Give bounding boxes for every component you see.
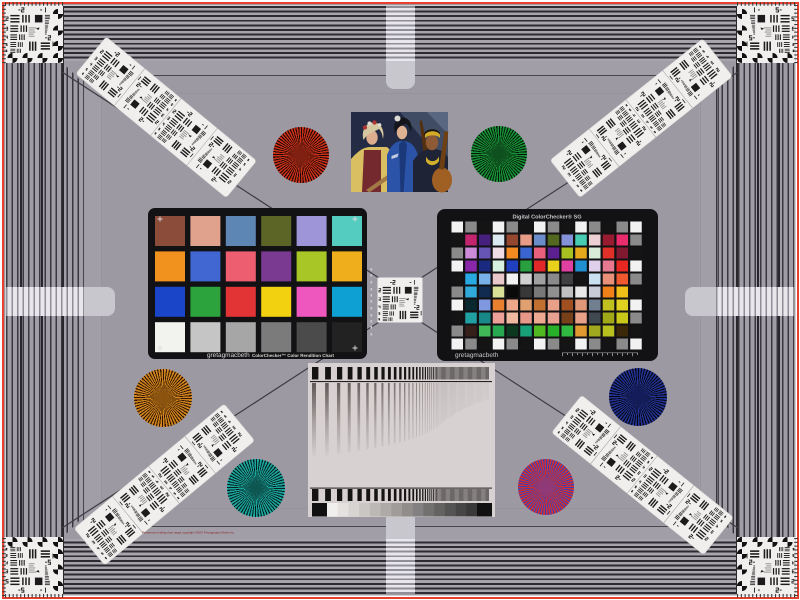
- svg-text:gretagmacbeth: gretagmacbeth: [207, 352, 250, 359]
- svg-text:gretagmacbeth: gretagmacbeth: [455, 352, 499, 359]
- svg-text:ColorChecker™ Color Rendition: ColorChecker™ Color Rendition Chart: [252, 353, 335, 358]
- svg-text:Persimmon testing chart target: Persimmon testing chart target copyright…: [142, 531, 235, 535]
- svg-text:Digital ColorChecker® SG: Digital ColorChecker® SG: [512, 214, 581, 221]
